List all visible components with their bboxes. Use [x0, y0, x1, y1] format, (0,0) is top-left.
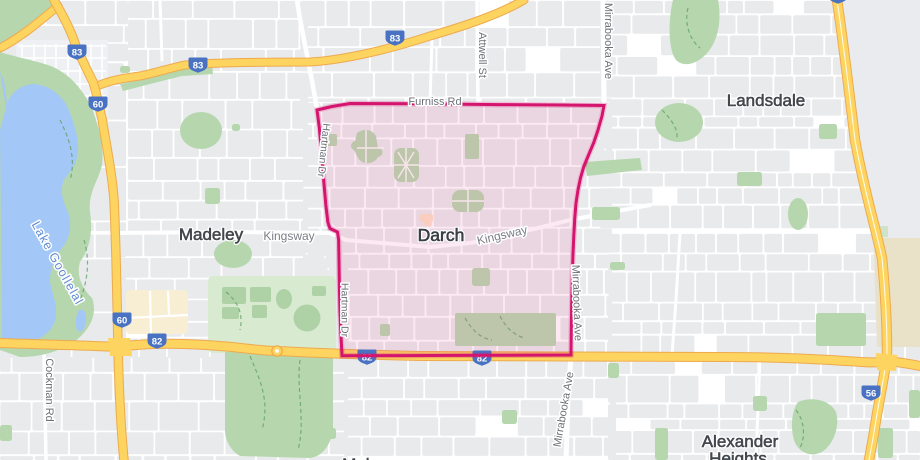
svg-text:Kingsway: Kingsway	[263, 229, 314, 243]
svg-text:83: 83	[390, 33, 401, 44]
svg-text:Mirrabooka Ave: Mirrabooka Ave	[602, 3, 614, 79]
svg-text:83: 83	[72, 47, 83, 58]
svg-text:83: 83	[193, 60, 204, 71]
svg-text:82: 82	[152, 336, 163, 347]
svg-text:Darch: Darch	[418, 225, 465, 245]
svg-text:Attwell St: Attwell St	[476, 32, 488, 78]
svg-text:Heights: Heights	[709, 449, 767, 460]
svg-text:Furniss Rd: Furniss Rd	[408, 96, 461, 108]
svg-text:60: 60	[93, 99, 104, 110]
svg-text:Cockman Rd: Cockman Rd	[43, 358, 55, 422]
svg-text:60: 60	[117, 315, 128, 326]
svg-text:Landsdale: Landsdale	[727, 91, 805, 110]
svg-text:Hartman Dr: Hartman Dr	[339, 283, 351, 338]
svg-text:56: 56	[866, 388, 877, 399]
svg-text:Madeley: Madeley	[179, 225, 244, 244]
svg-text:56: 56	[833, 0, 844, 2]
svg-text:Malaga: Malaga	[342, 455, 398, 460]
